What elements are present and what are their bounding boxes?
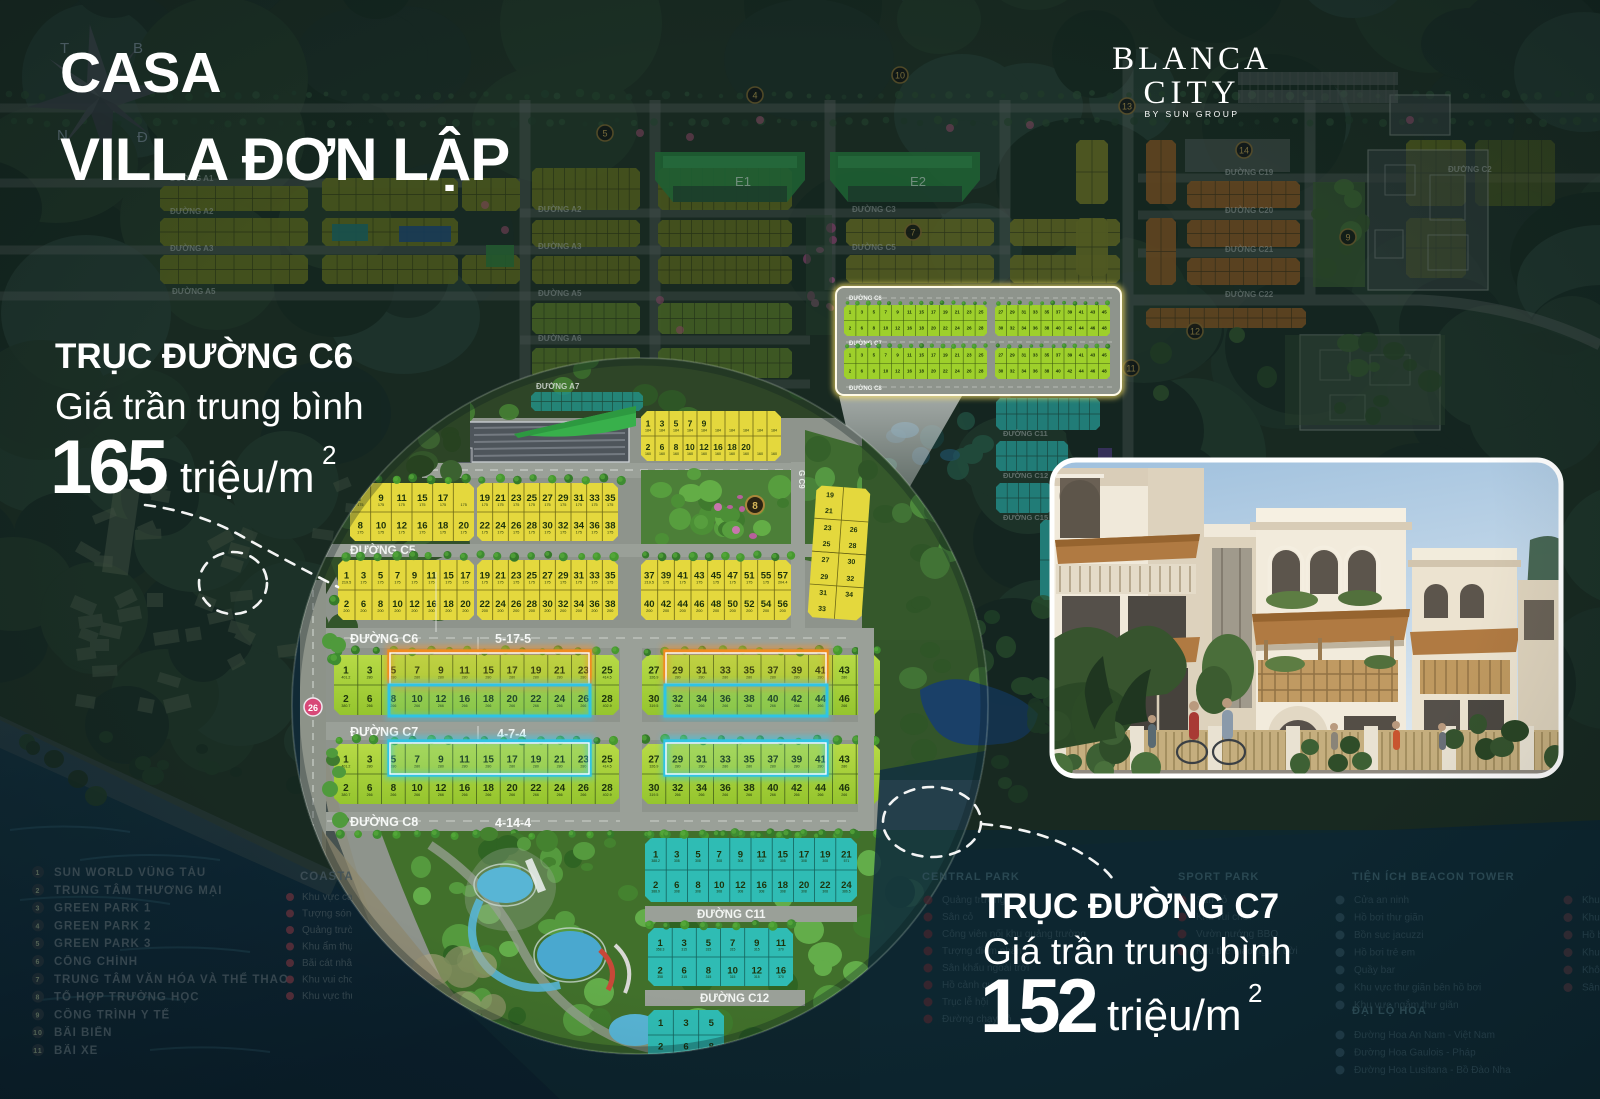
svg-text:Cửa an ninh: Cửa an ninh	[1354, 894, 1409, 906]
svg-text:9: 9	[36, 1012, 41, 1019]
svg-text:BÃI XE: BÃI XE	[54, 1044, 98, 1057]
svg-text:triệu/m: triệu/m	[180, 453, 314, 502]
svg-text:Khu vui chơi: Khu vui chơi	[1582, 895, 1600, 906]
svg-text:BLANCA: BLANCA	[1112, 41, 1272, 77]
svg-text:CASA: CASA	[60, 41, 222, 105]
svg-text:Hồ bơi trẻ em: Hồ bơi trẻ em	[1354, 947, 1415, 959]
svg-text:Hồ bơi thư giãn: Hồ bơi thư giãn	[1354, 912, 1423, 924]
svg-text:Giá trần trung bình: Giá trần trung bình	[55, 386, 364, 427]
svg-text:Đường Hoa Gaulois - Pháp: Đường Hoa Gaulois - Pháp	[1354, 1048, 1476, 1059]
svg-text:GREEN PARK 3: GREEN PARK 3	[54, 938, 151, 950]
svg-text:Bồn sục jacuzzi: Bồn sục jacuzzi	[1354, 929, 1423, 941]
svg-text:TRỤC ĐƯỜNG C6: TRỤC ĐƯỜNG C6	[55, 336, 353, 376]
svg-text:TRUNG TÂM THƯƠNG MẠI: TRUNG TÂM THƯƠNG MẠI	[54, 884, 222, 897]
svg-text:TRỤC ĐƯỜNG C7: TRỤC ĐƯỜNG C7	[981, 886, 1279, 926]
svg-text:2: 2	[1248, 978, 1262, 1008]
svg-text:TỔ HỢP TRƯỜNG HỌC: TỔ HỢP TRƯỜNG HỌC	[54, 991, 200, 1004]
svg-text:2: 2	[322, 440, 336, 470]
svg-text:Hồ bơi chung: Hồ bơi chung	[1582, 929, 1600, 941]
svg-text:Khu thay đồ: Khu thay đồ	[1582, 912, 1600, 924]
svg-text:Không gian đa năng: Không gian đa năng	[1582, 965, 1600, 976]
svg-text:BÃI BIỂN: BÃI BIỂN	[54, 1026, 112, 1039]
svg-text:Quầy bar: Quầy bar	[1354, 964, 1396, 976]
svg-text:CỔNG CHÍNH: CỔNG CHÍNH	[54, 955, 138, 968]
svg-text:CITY: CITY	[1144, 75, 1241, 111]
svg-text:11: 11	[33, 1048, 42, 1055]
svg-text:Đường Hoa Lusitana - Bồ Đào Nh: Đường Hoa Lusitana - Bồ Đào Nha	[1354, 1064, 1511, 1076]
svg-text:Sân cỏ: Sân cỏ	[942, 911, 974, 923]
svg-text:TRUNG TÂM VĂN HÓA VÀ THỂ THAO: TRUNG TÂM VĂN HÓA VÀ THỂ THAO	[54, 973, 289, 986]
svg-text:triệu/m: triệu/m	[1107, 991, 1241, 1040]
svg-text:1: 1	[36, 870, 41, 877]
svg-text:Khu vực ca: Khu vực ca	[302, 892, 353, 903]
svg-text:CENTRAL PARK: CENTRAL PARK	[922, 871, 1020, 883]
svg-text:8: 8	[36, 995, 41, 1002]
svg-text:Khu vực thư giãn bên hồ bơi: Khu vực thư giãn bên hồ bơi	[1354, 982, 1481, 994]
svg-text:TIỆN ÍCH BEACON TOWER: TIỆN ÍCH BEACON TOWER	[1352, 870, 1515, 883]
svg-text:VILLA ĐƠN LẬP: VILLA ĐƠN LẬP	[60, 126, 509, 193]
svg-text:CÔNG TRÌNH Y TẾ: CÔNG TRÌNH Y TẾ	[54, 1008, 170, 1021]
svg-text:BY SUN GROUP: BY SUN GROUP	[1144, 109, 1239, 119]
svg-text:Sân thi thao: Sân thi thao	[1582, 983, 1600, 994]
svg-text:165: 165	[50, 425, 168, 510]
svg-text:3: 3	[36, 906, 41, 913]
svg-text:SPORT PARK: SPORT PARK	[1178, 871, 1259, 883]
svg-text:10: 10	[33, 1030, 43, 1037]
svg-text:152: 152	[980, 964, 1097, 1049]
svg-text:Khu ẩm thực: Khu ẩm thực	[302, 941, 359, 953]
svg-text:6: 6	[36, 959, 41, 966]
svg-text:Khu vực ngắm thư giãn: Khu vực ngắm thư giãn	[1354, 998, 1459, 1011]
svg-text:GREEN PARK 1: GREEN PARK 1	[54, 903, 151, 915]
svg-text:Đường Hoa An Nam - Việt Nam: Đường Hoa An Nam - Việt Nam	[1354, 1030, 1495, 1041]
svg-text:7: 7	[36, 977, 41, 984]
svg-text:SUN WORLD VŨNG TÀU: SUN WORLD VŨNG TÀU	[54, 866, 206, 879]
svg-text:4: 4	[36, 923, 41, 930]
svg-text:5: 5	[36, 941, 41, 948]
svg-text:Khu vực chơi nghỉ dưỡng: Khu vực chơi nghỉ dưỡng	[1582, 947, 1600, 959]
svg-text:GREEN PARK 2: GREEN PARK 2	[54, 920, 151, 932]
svg-text:2: 2	[36, 888, 41, 895]
